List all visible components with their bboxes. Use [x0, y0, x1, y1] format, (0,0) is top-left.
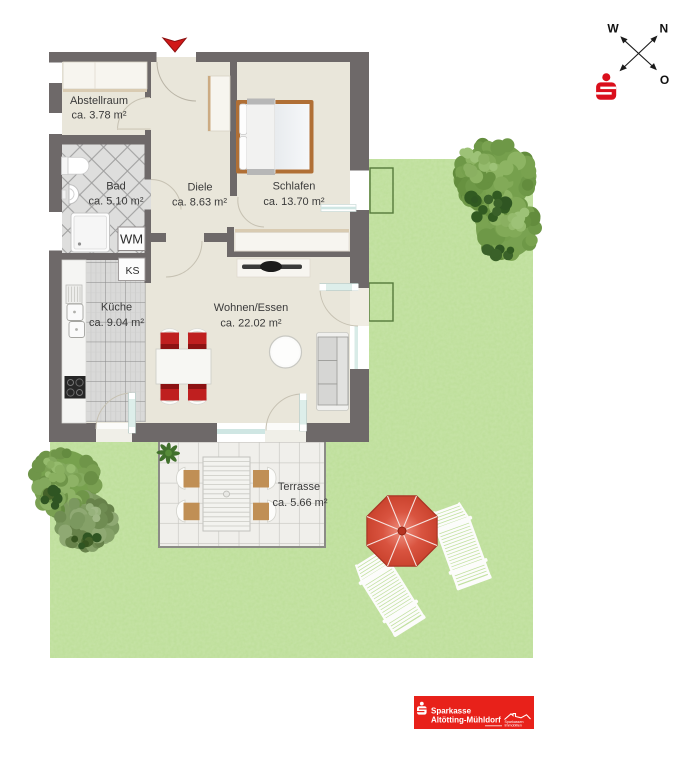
svg-text:O: O — [660, 73, 669, 87]
svg-text:ca. 5.10 m²: ca. 5.10 m² — [88, 196, 143, 208]
svg-text:ca. 13.70 m²: ca. 13.70 m² — [263, 196, 324, 208]
svg-text:Diele: Diele — [187, 182, 212, 194]
svg-text:Immobilien: Immobilien — [505, 723, 522, 727]
svg-text:ca. 3.78 m²: ca. 3.78 m² — [71, 110, 126, 122]
svg-text:Altötting-Mühldorf: Altötting-Mühldorf — [431, 716, 501, 725]
svg-text:Sparkasse: Sparkasse — [431, 707, 472, 716]
svg-text:N: N — [659, 22, 668, 36]
svg-text:Wohnen/Essen: Wohnen/Essen — [214, 302, 288, 314]
svg-text:Abstellraum: Abstellraum — [70, 95, 128, 107]
svg-text:W: W — [607, 22, 619, 36]
svg-text:ca. 8.63 m²: ca. 8.63 m² — [172, 197, 227, 209]
svg-text:WM: WM — [120, 232, 143, 247]
svg-text:Terrasse: Terrasse — [278, 481, 320, 493]
svg-text:ca. 5.66 m²: ca. 5.66 m² — [272, 497, 327, 509]
svg-text:ca. 9.04 m²: ca. 9.04 m² — [89, 317, 144, 329]
svg-text:Küche: Küche — [101, 302, 132, 314]
svg-text:Schlafen: Schlafen — [273, 181, 316, 193]
svg-text:ca. 22.02 m²: ca. 22.02 m² — [220, 318, 281, 330]
svg-text:Bad: Bad — [106, 181, 126, 193]
svg-text:KS: KS — [125, 265, 139, 277]
